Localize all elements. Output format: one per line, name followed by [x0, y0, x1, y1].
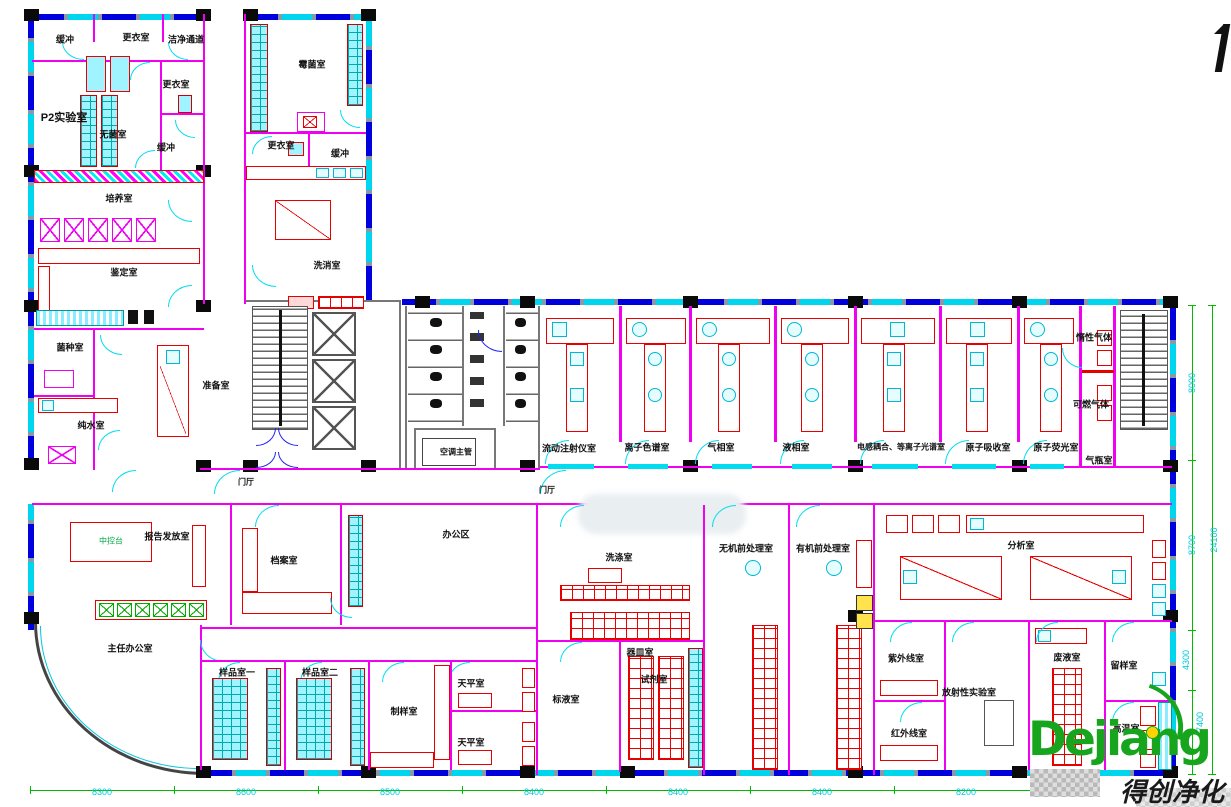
door-arc	[130, 62, 150, 80]
room-label: 原子吸收室	[965, 441, 1010, 454]
sample-rack	[350, 668, 365, 766]
room-label: 器皿室	[626, 646, 653, 659]
room-label: 档案室	[270, 554, 297, 567]
equipment	[303, 116, 317, 128]
wall	[162, 14, 164, 42]
wall	[788, 505, 790, 775]
instrument	[890, 322, 905, 337]
dimension-text: 8500	[380, 787, 400, 797]
room-label: 菌种室	[56, 341, 83, 354]
equipment-unit	[128, 310, 138, 324]
column	[361, 9, 376, 21]
window-band	[244, 14, 372, 20]
biosafety-cabinet	[80, 95, 97, 167]
culture-rack	[250, 24, 268, 132]
wall	[689, 306, 692, 442]
planter	[117, 603, 132, 617]
dimension-tick	[606, 786, 607, 794]
column	[24, 9, 39, 21]
room-label: 原子荧光室	[1033, 441, 1078, 454]
room-label: 有机前处理室	[796, 542, 850, 555]
air-shower-unit	[110, 56, 130, 92]
sample-rack	[266, 668, 281, 766]
wall-counter	[966, 515, 1144, 533]
dimension-tick	[174, 786, 175, 794]
room-label: 纯水室	[77, 419, 104, 432]
door-arc	[560, 505, 584, 527]
furniture-label: 中控台	[99, 536, 123, 547]
window-band	[366, 14, 372, 300]
planter	[171, 603, 186, 617]
room-label: 空调主管	[440, 447, 472, 458]
cabinet	[912, 515, 934, 533]
sink	[970, 518, 984, 530]
room-label: 红外线室	[891, 727, 927, 740]
wall	[399, 300, 401, 470]
dimension-text: 8700	[1187, 535, 1197, 555]
wash-rack-row	[570, 612, 690, 640]
wall	[405, 306, 407, 468]
wall	[619, 306, 622, 442]
wash-unit	[588, 568, 622, 583]
room-label: 制样室	[390, 705, 417, 718]
toilet-fixture	[515, 345, 526, 354]
door-arc	[98, 430, 120, 450]
room-label: 无机前处理室	[719, 542, 773, 555]
room-label: 电感耦合、等离子光谱室	[857, 442, 945, 453]
double-door-arc	[278, 428, 298, 446]
column	[620, 766, 635, 778]
window-sill	[712, 464, 752, 469]
sink	[316, 168, 329, 178]
pretreat-bench	[836, 625, 862, 770]
pass-box	[178, 95, 192, 113]
room-label: 液相室	[782, 441, 809, 454]
prep-counter	[370, 752, 434, 768]
column	[196, 766, 211, 778]
wall	[538, 306, 540, 468]
room-label: 无菌室	[99, 128, 126, 141]
room-label: 主任办公室	[107, 642, 152, 655]
column	[1163, 296, 1178, 308]
sink	[333, 168, 346, 178]
double-door-arc	[278, 452, 298, 468]
elevator	[312, 312, 356, 356]
room-label: 离子色谱室	[624, 441, 669, 454]
instrument	[648, 352, 662, 366]
wall	[160, 60, 162, 170]
door-arc	[900, 702, 922, 722]
planter	[153, 603, 168, 617]
wash-table	[275, 200, 331, 240]
window-sill	[548, 464, 594, 469]
dimension-text: 8300	[92, 787, 112, 797]
planter	[99, 603, 114, 617]
room-label: 更衣室	[122, 31, 149, 44]
dimension-tick	[1188, 630, 1196, 631]
wash-counter	[246, 166, 366, 180]
door-arc	[330, 598, 352, 618]
door-arc	[112, 470, 136, 492]
room-label: 更衣室	[162, 78, 189, 91]
toilet-fixture	[515, 372, 526, 381]
sterilizer	[44, 370, 74, 388]
wall	[246, 132, 366, 134]
wall	[230, 505, 232, 625]
wall	[939, 306, 942, 442]
cabinet	[192, 525, 206, 587]
sample-rack	[212, 678, 248, 760]
culture-rack	[347, 24, 363, 106]
instrument	[570, 388, 584, 402]
ir-bench	[880, 745, 938, 761]
door-arc	[1062, 348, 1082, 368]
door-arc	[175, 120, 195, 138]
door-arc	[168, 285, 192, 307]
room-label: 标液室	[552, 693, 579, 706]
vessel-rack	[688, 648, 703, 768]
dimension-text: 4300	[1181, 650, 1191, 670]
instrument	[970, 352, 984, 366]
floor-drain	[826, 560, 842, 576]
radio-table	[984, 700, 1014, 746]
unit	[1152, 584, 1166, 598]
room-label: 惰性气体	[1076, 331, 1112, 344]
wall	[200, 468, 540, 470]
unit	[1152, 672, 1166, 686]
door-arc	[560, 642, 582, 662]
instrument	[970, 322, 985, 337]
room-label: 缓冲	[56, 33, 74, 46]
uv-bench	[880, 680, 938, 696]
cabinet-row	[318, 296, 364, 309]
wall-cabinet	[522, 692, 535, 712]
column	[1012, 766, 1027, 778]
instrument	[887, 388, 901, 402]
gas-cylinder-rack	[1097, 350, 1112, 366]
balance-table	[458, 693, 492, 708]
room-label: 可燃气体	[1073, 398, 1109, 411]
instrument	[805, 352, 819, 366]
toilet-fixture	[430, 345, 442, 354]
wall	[873, 505, 875, 775]
dimension-tick	[750, 786, 751, 794]
instrument	[805, 388, 819, 402]
incubator	[88, 218, 108, 242]
room-label: 天平室	[457, 677, 484, 690]
urinal-row	[470, 312, 484, 407]
room-label: 门厅	[238, 477, 254, 488]
prep-bench	[434, 665, 450, 760]
room-label: 报告发放室	[144, 530, 189, 543]
room-label: 准备室	[202, 379, 229, 392]
wall	[34, 395, 94, 397]
instrument	[722, 352, 736, 366]
dimension-text: 8600	[236, 787, 256, 797]
archive-shelf	[242, 528, 258, 592]
mosaic-patch	[1030, 769, 1100, 797]
instrument	[648, 388, 662, 402]
instrument	[787, 322, 802, 337]
door-arc	[168, 200, 192, 222]
dimension-tick	[462, 786, 463, 794]
window-band	[402, 299, 1174, 305]
room-label: 缓冲	[157, 141, 175, 154]
wash-rack-row	[560, 585, 690, 601]
wall	[462, 306, 464, 426]
wall	[538, 640, 705, 642]
room-label: 培养室	[105, 192, 132, 205]
lab-bench	[38, 248, 200, 264]
wall	[203, 14, 205, 304]
dimension-tick	[1188, 305, 1196, 306]
sink	[42, 400, 54, 411]
dimension-tick	[1188, 460, 1196, 461]
archive-shelf	[242, 592, 332, 614]
incubator	[112, 218, 132, 242]
wall	[414, 428, 496, 430]
room-label: 门厅	[539, 485, 555, 496]
wall	[244, 14, 246, 304]
room-label: 废液室	[1053, 651, 1080, 664]
watermark-chinese: 得创净化	[1120, 772, 1224, 807]
equipment	[48, 446, 76, 464]
planter	[189, 603, 204, 617]
wall	[1082, 370, 1114, 373]
room-label: P2实验室	[41, 109, 87, 125]
window-band	[198, 770, 1174, 776]
column	[415, 296, 430, 308]
wall-cabinet	[522, 746, 535, 766]
double-door-arc	[256, 452, 276, 468]
door-arc	[952, 622, 974, 642]
stair-rail	[279, 310, 282, 426]
pretreat-bench	[752, 625, 778, 770]
dimension-tick	[318, 786, 319, 794]
room-label: 留样室	[1110, 659, 1137, 672]
incubator	[40, 218, 60, 242]
wall	[494, 428, 496, 468]
planter	[135, 603, 150, 617]
wall	[875, 700, 945, 702]
wall	[308, 132, 310, 168]
wall	[200, 627, 538, 629]
room-label: 气瓶室	[1085, 454, 1112, 467]
dimension-text: 8400	[524, 787, 544, 797]
dimension-tick	[1188, 690, 1196, 691]
elevator	[312, 406, 356, 450]
dimension-text: 24100	[1209, 527, 1219, 552]
room-label: 洁净通道	[168, 33, 204, 46]
room-label: 试剂室	[640, 673, 667, 686]
incubator	[136, 218, 156, 242]
sink	[350, 168, 363, 178]
archive-rack	[348, 515, 363, 607]
cropped-glyph	[1214, 24, 1224, 34]
heater-unit	[856, 595, 873, 611]
door-arc	[382, 662, 404, 682]
dimension-tick	[1208, 305, 1216, 306]
wall-cabinet	[522, 668, 535, 688]
dimension-text: 8400	[668, 787, 688, 797]
wall	[34, 328, 204, 330]
door-arc	[100, 335, 122, 355]
column	[520, 460, 535, 472]
instrument	[570, 352, 584, 366]
instrument	[970, 388, 984, 402]
sink	[903, 570, 917, 584]
fume-hood-sash	[160, 366, 186, 434]
air-shower-unit	[86, 56, 106, 92]
sample-rack	[296, 678, 332, 760]
elevator	[312, 359, 356, 403]
column	[520, 766, 535, 778]
toilet-fixture	[430, 372, 442, 381]
instrument	[1044, 352, 1058, 366]
unit	[1152, 602, 1166, 616]
window-sill	[872, 464, 918, 469]
instrument	[722, 388, 736, 402]
room-label: 样品室一	[219, 666, 255, 679]
room-label: 分析室	[1007, 539, 1034, 552]
wall	[854, 306, 857, 442]
wall-cabinet	[1152, 540, 1166, 558]
wall	[1113, 306, 1116, 468]
window-band	[28, 14, 34, 470]
toilet-fixture	[515, 399, 526, 408]
fume-hood-fan	[166, 350, 180, 364]
floor-drain	[745, 560, 761, 576]
toilet-fixture	[430, 318, 442, 327]
toilet-fixture	[430, 399, 442, 408]
instrument	[1030, 322, 1045, 337]
dimension-text: 8000	[1187, 373, 1197, 393]
door-arc	[214, 470, 240, 494]
dimension-text: 8400	[812, 787, 832, 797]
room-label: 鉴定室	[110, 266, 137, 279]
sink	[1112, 570, 1126, 584]
heater-unit	[856, 613, 873, 629]
wall	[503, 306, 505, 426]
cabinet	[938, 515, 960, 533]
wall	[414, 428, 416, 468]
dimension-tick	[894, 786, 895, 794]
wall-cabinet	[522, 722, 535, 742]
wall	[160, 113, 205, 115]
watermark-leaf-dot-icon	[1146, 726, 1159, 739]
column	[24, 612, 39, 624]
cabinet	[886, 515, 908, 533]
window-sill	[628, 464, 668, 469]
window-sill	[792, 464, 832, 469]
room-label: 紫外线室	[888, 652, 924, 665]
dimension-line	[30, 790, 1092, 791]
stair-rail	[1142, 314, 1145, 426]
room-label: 流动注射仪室	[542, 442, 596, 455]
door-arc	[252, 265, 276, 287]
room-label: 缓冲	[331, 147, 349, 160]
incubator	[64, 218, 84, 242]
room-label: 洗涤室	[605, 551, 632, 564]
window-band	[30, 14, 210, 20]
fume-cabinet	[856, 540, 872, 588]
wall	[93, 14, 95, 42]
work-counter	[36, 310, 124, 326]
dimension-text: 8200	[956, 787, 976, 797]
room-label: 天平室	[457, 736, 484, 749]
door-arc	[340, 110, 360, 128]
wall-cabinet	[1152, 562, 1166, 580]
room-label: 样品室二	[302, 666, 338, 679]
toilet-fixture	[515, 318, 526, 327]
instrument	[1044, 388, 1058, 402]
door-arc	[135, 150, 155, 168]
door-arc	[1112, 622, 1134, 642]
column	[24, 458, 39, 470]
wall	[1017, 306, 1020, 442]
column	[361, 460, 376, 472]
column	[520, 296, 535, 308]
wall	[450, 662, 452, 770]
door-arc	[796, 505, 820, 527]
double-door-arc	[256, 428, 276, 446]
window-sill	[1030, 464, 1064, 469]
room-label: 气相室	[707, 441, 734, 454]
equipment-unit	[144, 310, 154, 324]
wall	[774, 306, 777, 442]
room-label: 更衣室	[267, 139, 294, 152]
dimension-tick	[30, 786, 31, 794]
instrument	[632, 322, 647, 337]
floor-plan-canvas: 缓冲 更衣室 洁净通道 更衣室 P2实验室 无菌室 缓冲 培养室 鉴定室 菌种室…	[0, 0, 1231, 807]
window-sill	[952, 464, 996, 469]
room-label: 办公区	[442, 528, 469, 541]
room-label: 放射性实验室	[942, 686, 996, 699]
decon-strip	[34, 170, 204, 183]
instrument	[702, 322, 717, 337]
instrument	[552, 322, 567, 337]
column	[196, 460, 211, 472]
door-arc	[255, 505, 279, 527]
balance-table	[458, 750, 492, 765]
wall	[619, 642, 621, 772]
instrument	[887, 352, 901, 366]
room-label: 霉菌室	[298, 58, 325, 71]
room-label: 洗消室	[313, 259, 340, 272]
door-arc	[890, 622, 912, 642]
door-arc	[1036, 622, 1058, 642]
wall	[284, 662, 286, 770]
